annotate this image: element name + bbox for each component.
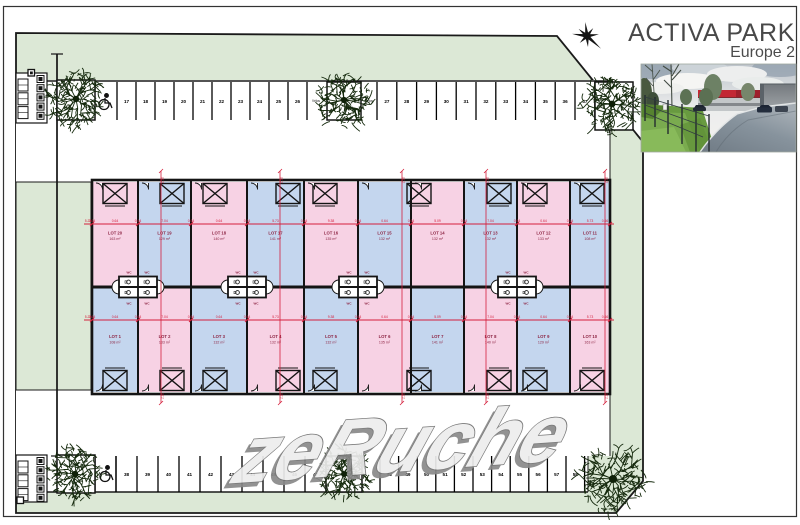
svg-text:LOT 8: LOT 8 [485, 334, 498, 339]
svg-text:40: 40 [166, 472, 172, 477]
svg-text:WC: WC [524, 271, 530, 275]
svg-text:0.64: 0.64 [540, 315, 547, 319]
svg-text:23: 23 [238, 99, 244, 104]
svg-text:9.38: 9.38 [328, 219, 335, 223]
svg-text:132 m²: 132 m² [485, 237, 497, 241]
svg-text:0.64: 0.64 [355, 219, 362, 223]
svg-text:LOT 18: LOT 18 [212, 231, 227, 236]
svg-text:WC: WC [236, 302, 242, 306]
svg-text:LOT 15: LOT 15 [377, 231, 392, 236]
svg-text:2.10: 2.10 [605, 393, 609, 399]
svg-text:35: 35 [543, 99, 549, 104]
svg-text:LOT 6: LOT 6 [379, 334, 392, 339]
svg-text:WC: WC [365, 302, 371, 306]
svg-text:26: 26 [295, 99, 301, 104]
svg-text:9.38: 9.38 [328, 315, 335, 319]
svg-text:0.64: 0.64 [567, 219, 574, 223]
svg-text:141 m²: 141 m² [432, 341, 444, 345]
svg-text:2.10: 2.10 [280, 177, 284, 183]
svg-text:WC: WC [506, 302, 512, 306]
svg-text:0.64: 0.64 [567, 315, 574, 319]
svg-text:LOT 9: LOT 9 [538, 334, 551, 339]
svg-text:Europe 2: Europe 2 [730, 44, 795, 61]
svg-text:0.64: 0.64 [301, 315, 308, 319]
svg-text:132 m²: 132 m² [379, 237, 391, 241]
svg-text:0.64: 0.64 [514, 315, 521, 319]
svg-text:WC: WC [145, 302, 151, 306]
svg-text:ACTIVA PARK: ACTIVA PARK [628, 19, 795, 47]
svg-text:163 m²: 163 m² [584, 341, 596, 345]
svg-text:LOT 10: LOT 10 [583, 334, 598, 339]
svg-text:0.64: 0.64 [135, 315, 142, 319]
svg-text:0.64: 0.64 [112, 315, 119, 319]
svg-text:33: 33 [503, 99, 509, 104]
svg-text:163 m²: 163 m² [109, 237, 121, 241]
svg-text:WC: WC [347, 302, 353, 306]
svg-text:0.64: 0.64 [461, 315, 468, 319]
svg-text:140 m²: 140 m² [485, 341, 497, 345]
svg-text:2.10: 2.10 [486, 177, 490, 183]
svg-text:7.04: 7.04 [161, 315, 168, 319]
svg-text:2.10: 2.10 [161, 393, 165, 399]
svg-text:WC: WC [524, 302, 530, 306]
svg-text:27: 27 [384, 99, 390, 104]
svg-text:0.64: 0.64 [355, 315, 362, 319]
svg-text:2.10: 2.10 [402, 177, 406, 183]
svg-text:0.64: 0.64 [408, 219, 415, 223]
svg-text:41: 41 [187, 472, 193, 477]
svg-text:36: 36 [563, 99, 569, 104]
svg-text:2.10: 2.10 [605, 177, 609, 183]
svg-text:57: 57 [554, 472, 560, 477]
svg-text:LOT 2: LOT 2 [159, 334, 172, 339]
svg-text:LOT 16: LOT 16 [324, 231, 339, 236]
svg-text:WC: WC [236, 271, 242, 275]
svg-text:32: 32 [483, 99, 489, 104]
svg-text:140 m²: 140 m² [213, 237, 225, 241]
svg-text:108 m²: 108 m² [109, 341, 121, 345]
svg-text:LOT 17: LOT 17 [268, 231, 283, 236]
svg-text:129 m²: 129 m² [538, 341, 550, 345]
svg-text:0.64: 0.64 [301, 219, 308, 223]
svg-text:31: 31 [464, 99, 470, 104]
svg-text:0.64: 0.64 [381, 315, 388, 319]
svg-text:2.10: 2.10 [161, 177, 165, 183]
svg-text:7.04: 7.04 [161, 219, 168, 223]
svg-text:LOT 7: LOT 7 [432, 334, 445, 339]
svg-text:WC: WC [127, 302, 133, 306]
svg-text:19: 19 [162, 99, 168, 104]
svg-text:5.73: 5.73 [587, 219, 594, 223]
svg-text:30: 30 [444, 99, 450, 104]
svg-text:WC: WC [145, 271, 151, 275]
svg-text:0.64: 0.64 [244, 219, 251, 223]
svg-text:18: 18 [143, 99, 149, 104]
svg-text:0.64: 0.64 [381, 219, 388, 223]
svg-text:135 m²: 135 m² [325, 237, 337, 241]
svg-text:5.23: 5.23 [85, 219, 92, 223]
svg-text:0.64: 0.64 [408, 315, 415, 319]
svg-text:135 m²: 135 m² [379, 341, 391, 345]
svg-text:5.09: 5.09 [434, 219, 441, 223]
svg-text:132 m²: 132 m² [432, 237, 444, 241]
svg-text:0.64: 0.64 [188, 315, 195, 319]
svg-text:2.10: 2.10 [280, 393, 284, 399]
svg-text:LOT 19: LOT 19 [157, 231, 172, 236]
svg-text:5.73: 5.73 [587, 315, 594, 319]
svg-text:LOT 3: LOT 3 [213, 334, 226, 339]
svg-text:133 m²: 133 m² [538, 237, 550, 241]
svg-text:5.09: 5.09 [434, 315, 441, 319]
svg-text:LOT 14: LOT 14 [430, 231, 445, 236]
svg-text:24: 24 [257, 99, 263, 104]
svg-text:WC: WC [365, 271, 371, 275]
svg-text:17: 17 [124, 99, 130, 104]
svg-text:0.64: 0.64 [135, 219, 142, 223]
svg-text:7.04: 7.04 [487, 315, 494, 319]
svg-text:WC: WC [127, 271, 133, 275]
svg-text:28: 28 [404, 99, 410, 104]
svg-text:WC: WC [254, 302, 260, 306]
svg-text:38: 38 [124, 472, 130, 477]
svg-text:WC: WC [254, 271, 260, 275]
svg-text:0.64: 0.64 [216, 219, 223, 223]
svg-text:25: 25 [276, 99, 282, 104]
svg-text:LOT 20: LOT 20 [108, 231, 123, 236]
svg-text:39: 39 [145, 472, 151, 477]
svg-text:42: 42 [208, 472, 214, 477]
svg-text:22: 22 [219, 99, 225, 104]
svg-text:0.64: 0.64 [216, 315, 223, 319]
svg-text:108 m²: 108 m² [584, 237, 596, 241]
svg-text:5.73: 5.73 [272, 219, 279, 223]
svg-text:5.73: 5.73 [272, 315, 279, 319]
svg-text:0.64: 0.64 [540, 219, 547, 223]
svg-text:132 m²: 132 m² [325, 341, 337, 345]
svg-text:WC: WC [506, 271, 512, 275]
svg-text:0.64: 0.64 [514, 219, 521, 223]
svg-text:WC: WC [347, 271, 353, 275]
svg-text:0.64: 0.64 [112, 219, 119, 223]
svg-text:7.04: 7.04 [487, 219, 494, 223]
svg-text:34: 34 [523, 99, 529, 104]
svg-text:0.64: 0.64 [188, 219, 195, 223]
svg-text:LOT 12: LOT 12 [536, 231, 551, 236]
svg-text:132 m²: 132 m² [213, 341, 225, 345]
svg-text:0.64: 0.64 [461, 219, 468, 223]
svg-text:LOT 1: LOT 1 [109, 334, 122, 339]
svg-text:5.23: 5.23 [85, 315, 92, 319]
svg-text:LOT 5: LOT 5 [325, 334, 338, 339]
svg-text:20: 20 [181, 99, 187, 104]
svg-text:29: 29 [424, 99, 430, 104]
svg-text:21: 21 [200, 99, 206, 104]
svg-text:LOT 11: LOT 11 [583, 231, 598, 236]
svg-text:0.64: 0.64 [244, 315, 251, 319]
